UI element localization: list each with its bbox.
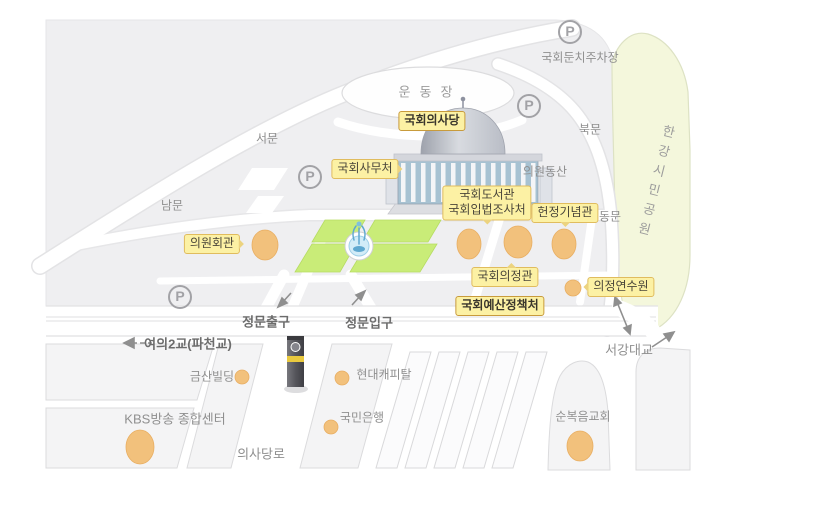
label-main-gate-exit: 정문출구 (242, 312, 290, 331)
label-secretariat: 국회사무처 (331, 159, 398, 179)
label-members-hall-text: 의원회관 (190, 236, 234, 250)
parking-icon: P (168, 285, 192, 309)
label-north-gate: 북문 (579, 121, 601, 138)
label-kookmin-bank: 국민은행 (340, 409, 384, 426)
label-west-gate: 서문 (256, 130, 278, 147)
label-uijeong-hall-text: 국회의정관 (477, 269, 532, 283)
pointer-icon (578, 282, 588, 292)
label-south-gate: 남문 (161, 197, 183, 214)
pointer-icon (507, 258, 517, 268)
label-geumsan-building: 금산빌딩 (190, 368, 234, 385)
label-hyundai-capital: 현대캐피탈 (356, 366, 411, 383)
pointer-icon (398, 164, 408, 174)
label-yeoui-bridge: 여의2교(파천교) (144, 334, 232, 353)
parking-icon: P (298, 165, 322, 189)
label-east-gate: 동문 (599, 208, 621, 225)
label-full-gospel-church: 순복음교회 (555, 408, 610, 425)
map-canvas (0, 0, 840, 525)
label-budget-office: 국회예산정책처 (455, 296, 544, 316)
label-playground: 운동장 (399, 82, 462, 101)
parking-icon: P (517, 94, 541, 118)
label-memorial-hall: 헌정기념관 (531, 203, 598, 223)
label-library: 국회도서관 국회입법조사처 (442, 186, 531, 221)
label-memorial-hall-text: 헌정기념관 (537, 205, 592, 219)
label-members-hill: 의원동산 (523, 163, 567, 180)
pointer-icon (560, 222, 570, 232)
label-uijeong-hall: 국회의정관 (471, 267, 538, 287)
label-main-gate-entrance: 정문입구 (345, 313, 393, 332)
pointer-icon (239, 239, 249, 249)
label-seogang-bridge: 서강대교 (605, 340, 653, 359)
parking-icon: P (558, 20, 582, 44)
label-secretariat-text: 국회사무처 (337, 161, 392, 175)
label-library-line1: 국회도서관 (448, 188, 525, 203)
label-library-line2: 국회입법조사처 (448, 203, 525, 218)
assembly-campus-map: P P P P 운동장 서문 남문 북문 동문 의원동산 국회둔치주차장 한강시… (0, 0, 840, 525)
label-members-hall: 의원회관 (184, 234, 240, 254)
monument-obelisk (284, 336, 308, 393)
label-riverside-parking: 국회둔치주차장 (541, 49, 618, 66)
label-training-institute-text: 의정연수원 (593, 279, 648, 293)
label-training-institute: 의정연수원 (587, 277, 654, 297)
pointer-icon (482, 220, 492, 230)
label-kbs-center: KBS방송 종합센터 (124, 409, 225, 428)
label-uisadang-road: 의사당로 (237, 444, 285, 463)
label-assembly-hall: 국회의사당 (398, 111, 465, 131)
